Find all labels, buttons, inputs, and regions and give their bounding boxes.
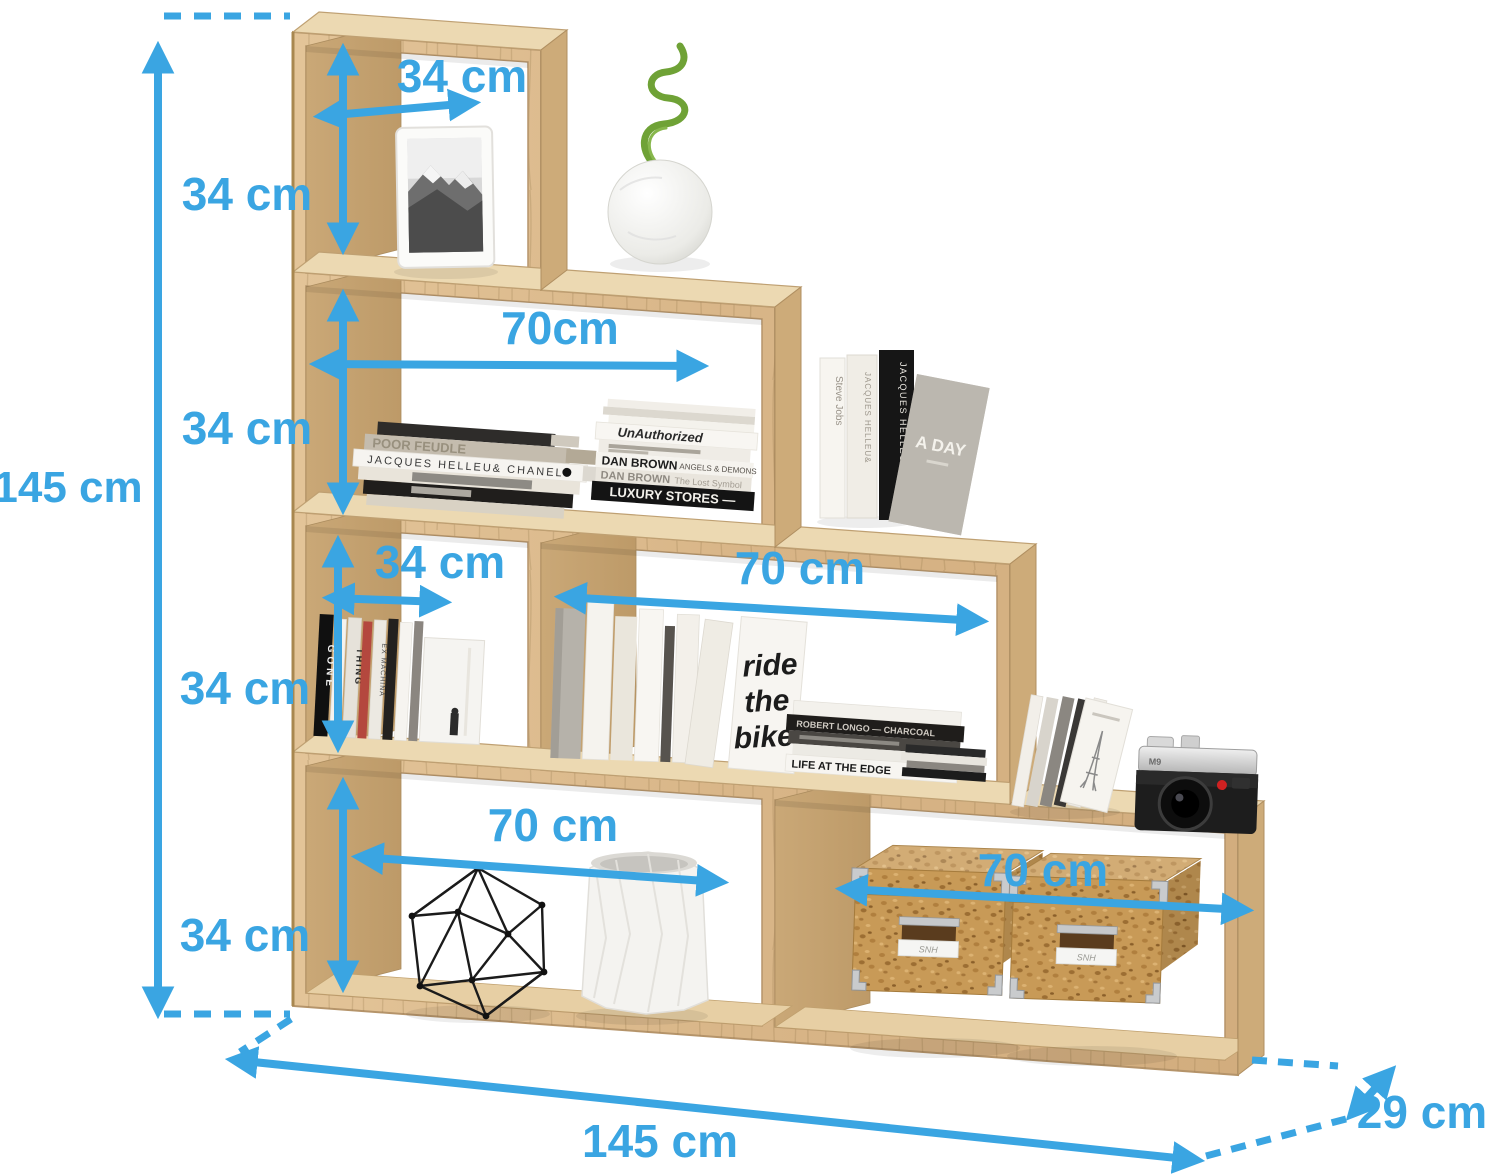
product-dimension-diagram: POOR FEUDLE JACQUES HELLEU& CHANEL UnAut…: [0, 0, 1500, 1176]
round-vase: [608, 160, 712, 264]
label-total-width: 145 cm: [582, 1115, 738, 1167]
cd-stack-l3: [900, 744, 988, 782]
arrow-l3-small-width: [331, 598, 443, 602]
arrow-l2-width: [318, 364, 700, 366]
label-l4-left-width: 70 cm: [488, 799, 618, 851]
label-holder: SNH: [1056, 925, 1117, 966]
label-l3-wide-width: 70 cm: [735, 542, 865, 594]
dash-bottom-right: [1206, 1119, 1346, 1156]
book-spine-label: JACQUES HELLEU&: [863, 372, 872, 463]
camera-model-label: M9: [1149, 756, 1162, 766]
dash-depth-top: [1252, 1060, 1338, 1066]
spiral-plant: [644, 46, 684, 168]
label-l3-small-width: 34 cm: [375, 536, 505, 588]
standing-books-step2: Steve Jobs JACQUES HELLEU& JACQUES HELLE…: [820, 350, 990, 535]
book-cover-word: the: [744, 684, 791, 719]
label-l2-width: 70cm: [501, 302, 619, 354]
book-cover-word: ride: [742, 648, 799, 684]
book-cover-word: bike: [733, 719, 795, 755]
label-l1-height: 34 cm: [182, 168, 312, 220]
box-label-text: SNH: [919, 944, 939, 955]
label-top-cube-width: 34 cm: [397, 50, 527, 102]
label-l4-right-width: 70 cm: [978, 844, 1108, 896]
label-l2-height: 34 cm: [182, 402, 312, 454]
label-l4-height: 34 cm: [180, 909, 310, 961]
camera: M9: [1134, 734, 1259, 834]
box-label-text: SNH: [1077, 952, 1097, 963]
standing-books-l3: ride the bike: [550, 600, 808, 774]
photo-frame: [396, 126, 494, 268]
label-l3-height: 34 cm: [180, 662, 310, 714]
label-depth: 29 cm: [1357, 1086, 1487, 1138]
book-stack-right: UnAuthorized DAN BROWN ANGELS & DEMONS D…: [591, 398, 761, 511]
book-spine-label: Steve Jobs: [833, 376, 844, 425]
white-dvd-box: [419, 638, 484, 745]
label-total-height: 145 cm: [0, 463, 143, 512]
label-holder: SNH: [898, 917, 959, 958]
diagram-canvas: POOR FEUDLE JACQUES HELLEU& CHANEL UnAut…: [0, 0, 1500, 1176]
dash-bottom-left: [240, 1019, 291, 1052]
